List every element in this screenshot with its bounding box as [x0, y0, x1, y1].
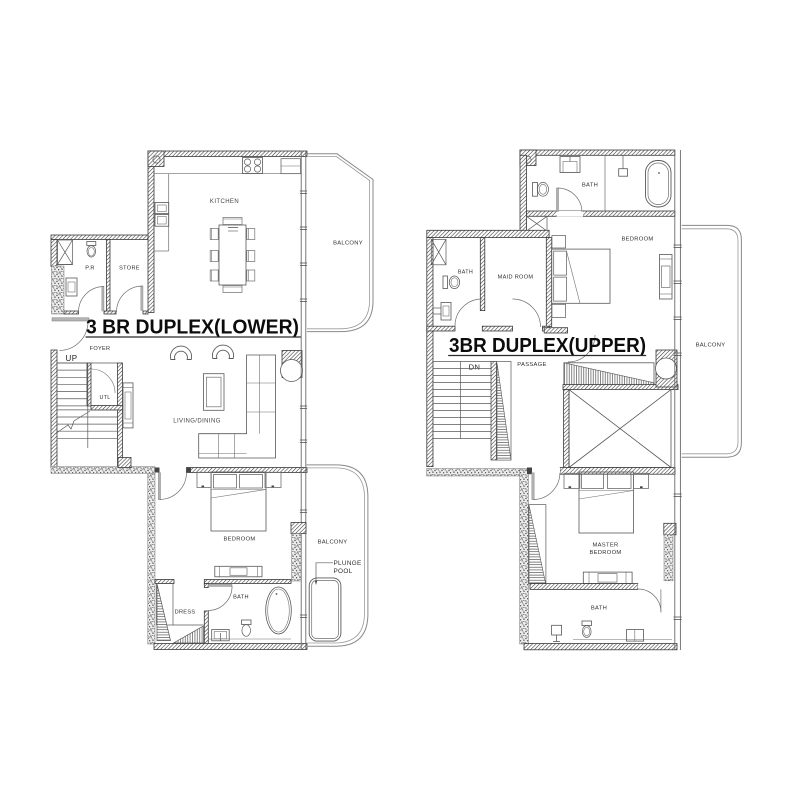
svg-text:BATH: BATH — [458, 270, 473, 276]
svg-text:STORE: STORE — [119, 266, 140, 272]
svg-text:BEDROOM: BEDROOM — [589, 550, 621, 556]
svg-text:UTL: UTL — [99, 395, 110, 401]
svg-text:3BR DUPLEX(UPPER): 3BR DUPLEX(UPPER) — [449, 335, 646, 357]
svg-text:MAID ROOM: MAID ROOM — [498, 275, 534, 281]
svg-text:DN: DN — [469, 363, 481, 372]
svg-text:PLUNGE: PLUNGE — [334, 560, 362, 567]
svg-text:BEDROOM: BEDROOM — [223, 537, 255, 543]
svg-text:BALCONY: BALCONY — [696, 343, 726, 349]
svg-text:BATH: BATH — [591, 606, 607, 612]
svg-text:BALCONY: BALCONY — [333, 241, 363, 247]
svg-text:3 BR DUPLEX(LOWER): 3 BR DUPLEX(LOWER) — [86, 317, 299, 339]
svg-text:FOYER: FOYER — [90, 346, 111, 352]
svg-text:BATH: BATH — [233, 595, 249, 601]
svg-text:P.R: P.R — [85, 266, 95, 272]
svg-text:MASTER: MASTER — [593, 543, 619, 549]
svg-text:BEDROOM: BEDROOM — [621, 237, 653, 243]
svg-text:BATH: BATH — [582, 183, 598, 189]
svg-text:PASSAGE: PASSAGE — [517, 362, 546, 368]
svg-text:UP: UP — [66, 354, 78, 363]
svg-text:KITCHEN: KITCHEN — [210, 199, 239, 205]
svg-text:POOL: POOL — [334, 568, 353, 575]
svg-text:LIVING/DINING: LIVING/DINING — [173, 419, 221, 425]
svg-text:BALCONY: BALCONY — [318, 540, 348, 546]
svg-text:DRESS: DRESS — [175, 610, 196, 616]
